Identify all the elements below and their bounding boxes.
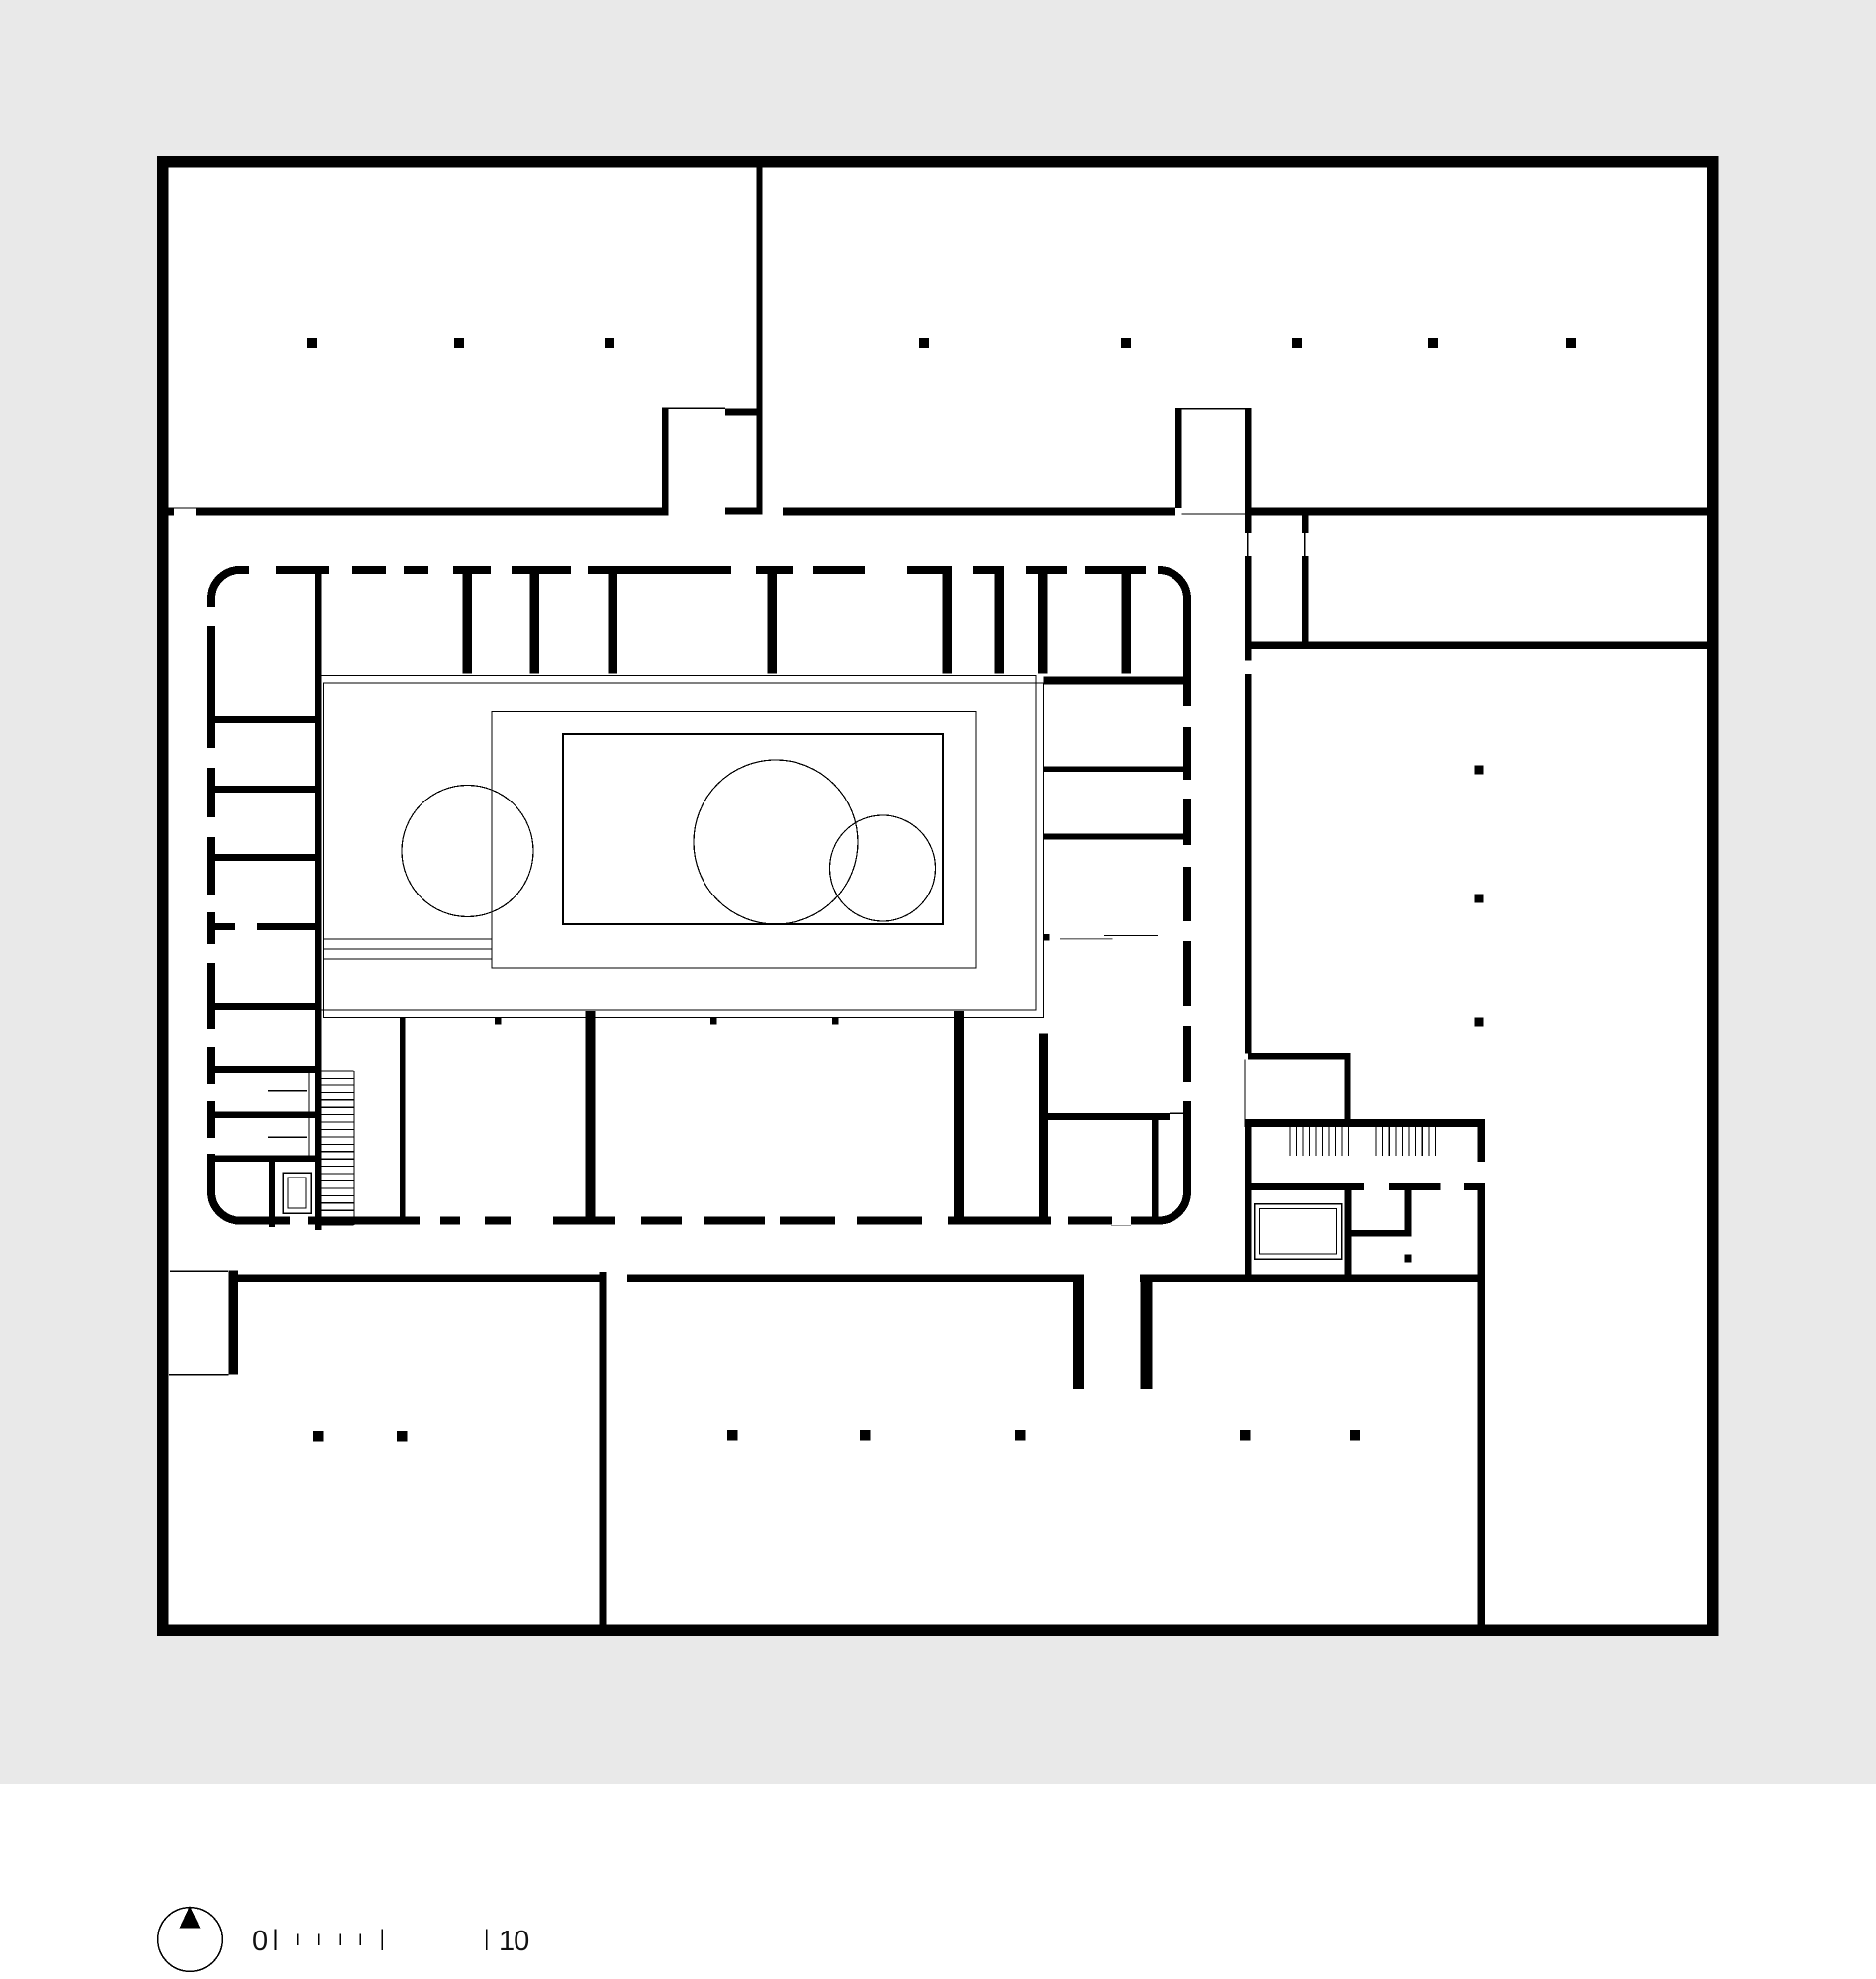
svg-text:10: 10: [499, 1926, 528, 1957]
svg-text:0: 0: [252, 1926, 268, 1957]
